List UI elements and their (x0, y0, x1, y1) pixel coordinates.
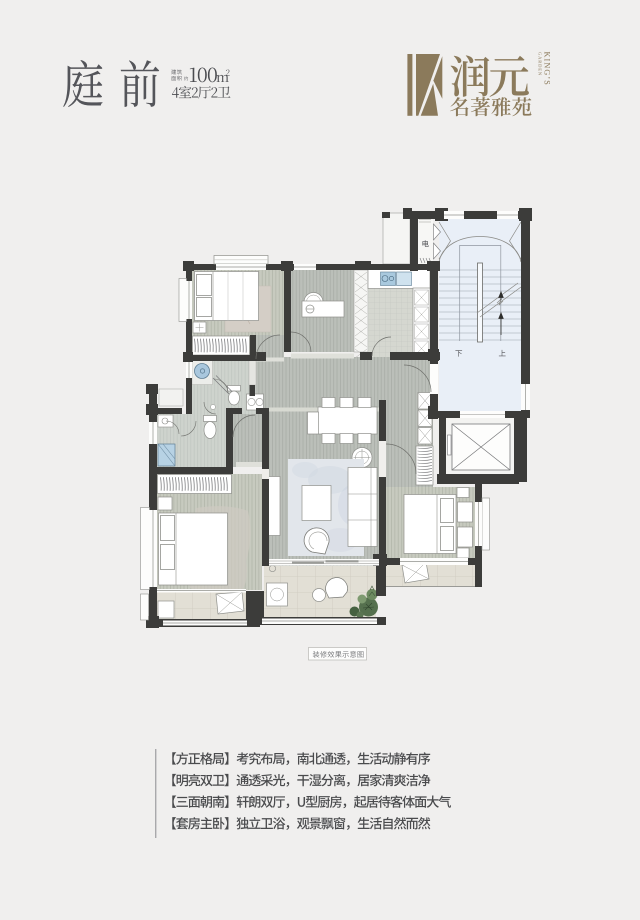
svg-text:GARDEN: GARDEN (538, 52, 543, 76)
svg-text:KING’S: KING’S (543, 52, 552, 86)
